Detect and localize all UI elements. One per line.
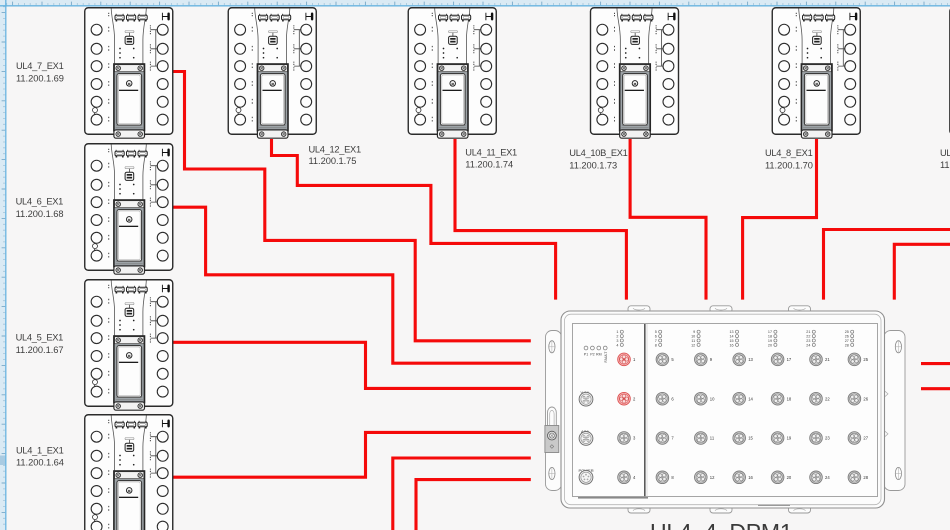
svg-text:10: 10 — [691, 335, 695, 339]
svg-text:12: 12 — [710, 475, 715, 480]
svg-text:27: 27 — [863, 436, 868, 441]
svg-text:10: 10 — [710, 396, 715, 401]
svg-text:15: 15 — [729, 339, 733, 343]
svg-text:9: 9 — [693, 330, 695, 334]
svg-text:11.200.1.67: 11.200.1.67 — [16, 345, 64, 355]
svg-text:18: 18 — [787, 396, 792, 401]
svg-text:27: 27 — [845, 339, 849, 343]
svg-text:UL4_11_EX1: UL4_11_EX1 — [465, 148, 517, 158]
svg-text:11.200.1.75: 11.200.1.75 — [309, 156, 357, 166]
svg-text:16: 16 — [748, 475, 753, 480]
svg-text:UL4_1_EX1: UL4_1_EX1 — [16, 445, 64, 455]
svg-text:25: 25 — [845, 330, 849, 334]
svg-text:14: 14 — [748, 396, 753, 401]
svg-text:P1: P1 — [584, 353, 588, 357]
svg-text:21: 21 — [806, 330, 810, 334]
svg-text:13: 13 — [729, 330, 733, 334]
svg-text:11.200.1.70: 11.200.1.70 — [765, 161, 813, 171]
svg-text:11.200.1.64: 11.200.1.64 — [16, 458, 64, 468]
svg-text:20: 20 — [787, 475, 792, 480]
svg-text:13: 13 — [748, 357, 753, 362]
svg-text:17: 17 — [787, 357, 792, 362]
svg-text:UL4_8_EX1: UL4_8_EX1 — [765, 148, 813, 158]
svg-text:5: 5 — [655, 330, 657, 334]
svg-text:28: 28 — [863, 475, 868, 480]
svg-text:18: 18 — [768, 335, 772, 339]
svg-text:UL4_6_EX1: UL4_6_EX1 — [16, 197, 64, 207]
svg-text:16: 16 — [729, 343, 733, 347]
svg-text:1: 1 — [616, 330, 618, 334]
svg-text:19: 19 — [768, 339, 772, 343]
svg-text:UL4_12_EX1: UL4_12_EX1 — [309, 145, 361, 155]
svg-text:23: 23 — [806, 339, 810, 343]
svg-text:11.200.1.74: 11.200.1.74 — [465, 160, 513, 170]
svg-text:3: 3 — [616, 339, 618, 343]
svg-text:11: 11 — [691, 339, 695, 343]
svg-text:UL4_9_EX1: UL4_9_EX1 — [940, 148, 950, 158]
svg-text:UL4_4_DPM1: UL4_4_DPM1 — [650, 519, 792, 530]
svg-text:RM: RM — [596, 353, 602, 357]
svg-text:6: 6 — [655, 335, 657, 339]
svg-text:FAULT: FAULT — [604, 351, 608, 363]
svg-text:26: 26 — [845, 335, 849, 339]
svg-text:26: 26 — [863, 396, 868, 401]
svg-text:23: 23 — [825, 436, 830, 441]
svg-text:UL4_7_EX1: UL4_7_EX1 — [16, 61, 64, 71]
svg-text:24: 24 — [806, 343, 810, 347]
svg-text:7: 7 — [655, 339, 657, 343]
svg-text:2: 2 — [616, 335, 618, 339]
svg-text:11.200.1.69: 11.200.1.69 — [16, 73, 64, 83]
svg-text:14: 14 — [729, 335, 733, 339]
svg-text:11.200.1.73: 11.200.1.73 — [569, 161, 617, 171]
svg-text:11.200.1.68: 11.200.1.68 — [16, 209, 64, 219]
svg-text:P2: P2 — [590, 353, 594, 357]
svg-text:22: 22 — [825, 396, 830, 401]
svg-text:22: 22 — [806, 335, 810, 339]
svg-text:24: 24 — [825, 475, 830, 480]
svg-text:4: 4 — [616, 343, 618, 347]
svg-text:28: 28 — [845, 343, 849, 347]
svg-text:17: 17 — [768, 330, 772, 334]
svg-text:11.200.1.71: 11.200.1.71 — [940, 160, 950, 170]
svg-text:11: 11 — [710, 436, 715, 441]
svg-text:8: 8 — [655, 343, 657, 347]
svg-text:UL4_10B_EX1: UL4_10B_EX1 — [569, 148, 627, 158]
svg-text:25: 25 — [863, 357, 868, 362]
svg-text:20: 20 — [768, 343, 772, 347]
svg-text:21: 21 — [825, 357, 830, 362]
svg-text:12: 12 — [691, 343, 695, 347]
svg-text:19: 19 — [787, 436, 792, 441]
svg-text:UL4_5_EX1: UL4_5_EX1 — [16, 332, 64, 342]
svg-text:15: 15 — [748, 436, 753, 441]
